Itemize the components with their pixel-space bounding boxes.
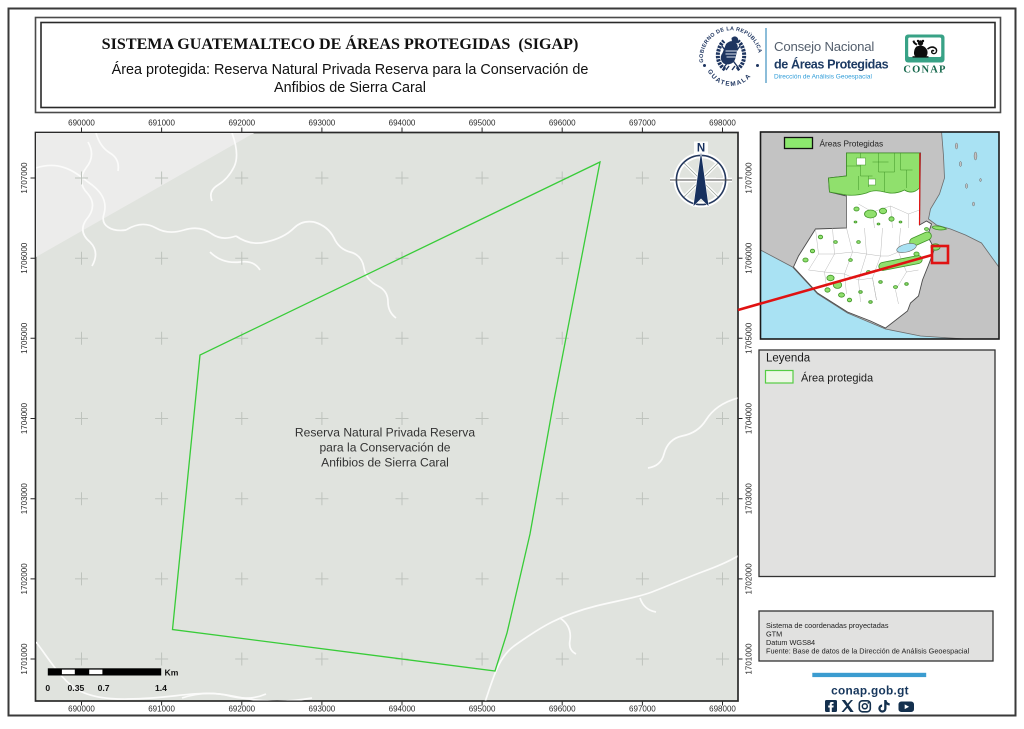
svg-text:Sistema de coordenadas proyect: Sistema de coordenadas proyectadas xyxy=(766,621,889,630)
svg-text:692000: 692000 xyxy=(228,705,255,714)
svg-text:1702000: 1702000 xyxy=(745,563,754,595)
svg-text:Áreas Protegidas: Áreas Protegidas xyxy=(820,139,884,149)
svg-text:694000: 694000 xyxy=(389,119,416,128)
svg-text:1705000: 1705000 xyxy=(745,322,754,354)
svg-text:Fuente: Base de datos de la Di: Fuente: Base de datos de la Dirección de… xyxy=(766,647,970,656)
svg-text:para la Conservación de: para la Conservación de xyxy=(319,441,450,455)
svg-text:695000: 695000 xyxy=(469,119,496,128)
svg-text:698000: 698000 xyxy=(709,705,736,714)
svg-text:de Áreas Protegidas: de Áreas Protegidas xyxy=(774,57,889,72)
svg-text:693000: 693000 xyxy=(309,119,336,128)
svg-text:Leyenda: Leyenda xyxy=(766,353,811,365)
svg-text:Km: Km xyxy=(165,668,179,678)
svg-text:1704000: 1704000 xyxy=(20,402,29,434)
svg-text:691000: 691000 xyxy=(148,119,175,128)
svg-text:697000: 697000 xyxy=(629,705,656,714)
svg-text:SISTEMA GUATEMALTECO DE ÁREAS: SISTEMA GUATEMALTECO DE ÁREAS PROTEGIDAS… xyxy=(102,34,579,53)
svg-text:696000: 696000 xyxy=(549,705,576,714)
svg-text:695000: 695000 xyxy=(469,705,496,714)
svg-text:Área protegida: Reserva Natura: Área protegida: Reserva Natural Privada … xyxy=(112,61,589,78)
svg-text:690000: 690000 xyxy=(68,119,95,128)
svg-text:1705000: 1705000 xyxy=(20,322,29,354)
svg-text:Reserva Natural Privada Reserv: Reserva Natural Privada Reserva xyxy=(295,426,475,440)
svg-text:Dirección de Análisis Geoespac: Dirección de Análisis Geoespacial xyxy=(774,74,872,81)
svg-text:1702000: 1702000 xyxy=(20,563,29,595)
svg-text:0.7: 0.7 xyxy=(98,683,110,693)
svg-text:698000: 698000 xyxy=(709,119,736,128)
svg-text:1703000: 1703000 xyxy=(20,483,29,515)
svg-text:1706000: 1706000 xyxy=(20,242,29,274)
svg-text:692000: 692000 xyxy=(228,119,255,128)
svg-text:1707000: 1707000 xyxy=(20,162,29,194)
svg-text:1.4: 1.4 xyxy=(155,683,167,693)
svg-text:CONAP: CONAP xyxy=(903,65,946,76)
svg-text:conap.gob.gt: conap.gob.gt xyxy=(831,684,909,698)
svg-text:1707000: 1707000 xyxy=(745,162,754,194)
svg-text:697000: 697000 xyxy=(629,119,656,128)
svg-text:Anfibios de Sierra Caral: Anfibios de Sierra Caral xyxy=(321,456,449,470)
svg-text:1703000: 1703000 xyxy=(745,483,754,515)
svg-text:Área protegida: Área protegida xyxy=(801,372,874,385)
svg-text:1704000: 1704000 xyxy=(745,402,754,434)
svg-text:Anfibios de Sierra Caral: Anfibios de Sierra Caral xyxy=(274,80,426,96)
svg-text:1706000: 1706000 xyxy=(745,242,754,274)
svg-text:691000: 691000 xyxy=(148,705,175,714)
svg-text:0: 0 xyxy=(45,683,50,693)
svg-text:1701000: 1701000 xyxy=(745,643,754,675)
svg-text:696000: 696000 xyxy=(549,119,576,128)
svg-text:0.35: 0.35 xyxy=(68,683,85,693)
svg-text:693000: 693000 xyxy=(309,705,336,714)
svg-text:Consejo Nacional: Consejo Nacional xyxy=(774,39,874,54)
svg-text:694000: 694000 xyxy=(389,705,416,714)
svg-text:690000: 690000 xyxy=(68,705,95,714)
svg-text:1701000: 1701000 xyxy=(20,643,29,675)
